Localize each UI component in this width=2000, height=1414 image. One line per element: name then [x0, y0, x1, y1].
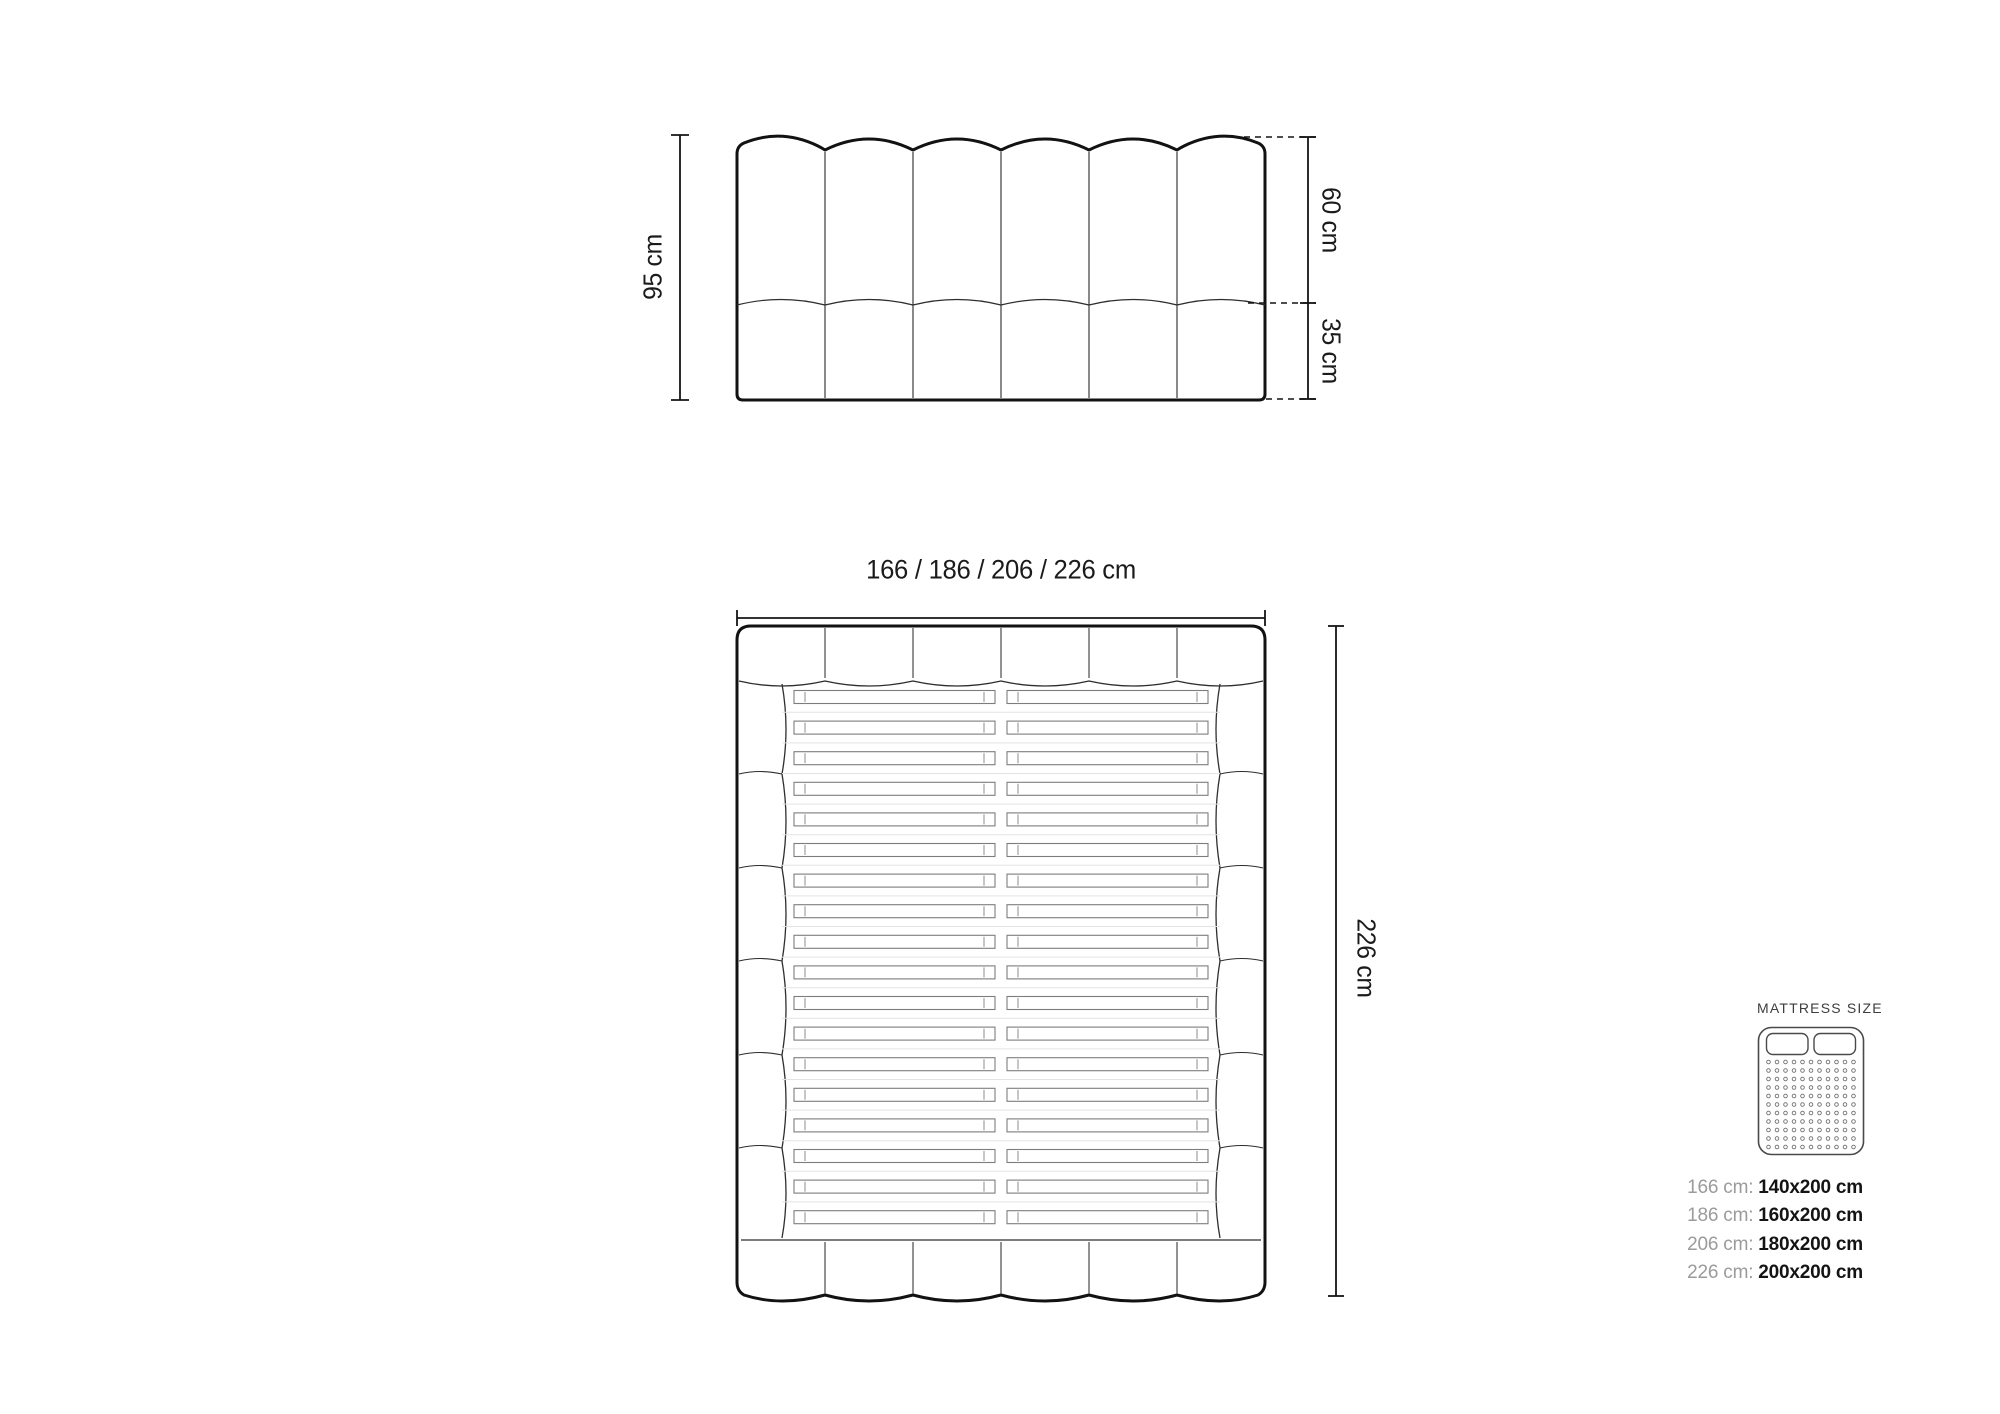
frame-width-label: 226 cm:	[1687, 1262, 1753, 1283]
mattress-size-value: 200x200 cm	[1758, 1262, 1863, 1283]
left-bolster	[739, 684, 786, 1238]
section-dimension-lines	[1233, 137, 1316, 399]
foot-strip	[741, 1240, 1261, 1294]
frame-width-label: 206 cm:	[1687, 1234, 1753, 1255]
bed-slats	[782, 691, 1220, 1224]
headboard-front-view	[737, 136, 1265, 400]
headboard-lower-section-label: 35 cm	[1316, 318, 1347, 384]
mattress-size-value: 160x200 cm	[1758, 1205, 1863, 1226]
head-strip-wave	[739, 681, 1263, 686]
mattress-size-table: 166 cm:140x200 cm 186 cm:160x200 cm 206 …	[1687, 1174, 1863, 1288]
width-dimension-line	[737, 610, 1265, 626]
size-row: 186 cm:160x200 cm	[1687, 1202, 1863, 1230]
mattress-icon	[1757, 1026, 1865, 1156]
pillow-right-icon	[1814, 1034, 1856, 1055]
length-dimension-line	[1328, 626, 1344, 1296]
bed-width-label: 166 / 186 / 206 / 226 cm	[866, 555, 1136, 586]
size-row: 206 cm:180x200 cm	[1687, 1231, 1863, 1259]
pillow-left-icon	[1767, 1034, 1809, 1055]
frame-width-label: 186 cm:	[1687, 1205, 1753, 1226]
headboard-upper-section-label: 60 cm	[1316, 187, 1347, 253]
mattress-size-title: MATTRESS SIZE	[1757, 1000, 1865, 1016]
height-dimension-line	[671, 135, 689, 400]
frame-width-label: 166 cm:	[1687, 1177, 1753, 1198]
mattress-size-value: 140x200 cm	[1758, 1177, 1863, 1198]
bed-dimension-diagram: 95 cm 60 cm 35 cm 166 / 186 / 206 / 226 …	[0, 0, 2000, 1414]
extension-dashed-lines	[1233, 137, 1316, 399]
bed-top-view	[737, 626, 1265, 1301]
head-strip-dividers	[825, 628, 1177, 678]
size-row: 226 cm:200x200 cm	[1687, 1259, 1863, 1287]
size-row: 166 cm:140x200 cm	[1687, 1174, 1863, 1202]
right-bolster	[1216, 684, 1263, 1238]
mattress-size-value: 180x200 cm	[1758, 1234, 1863, 1255]
headboard-height-label: 95 cm	[638, 234, 669, 300]
headboard-channel-dividers	[825, 152, 1177, 398]
bed-length-label: 226 cm	[1351, 918, 1382, 997]
